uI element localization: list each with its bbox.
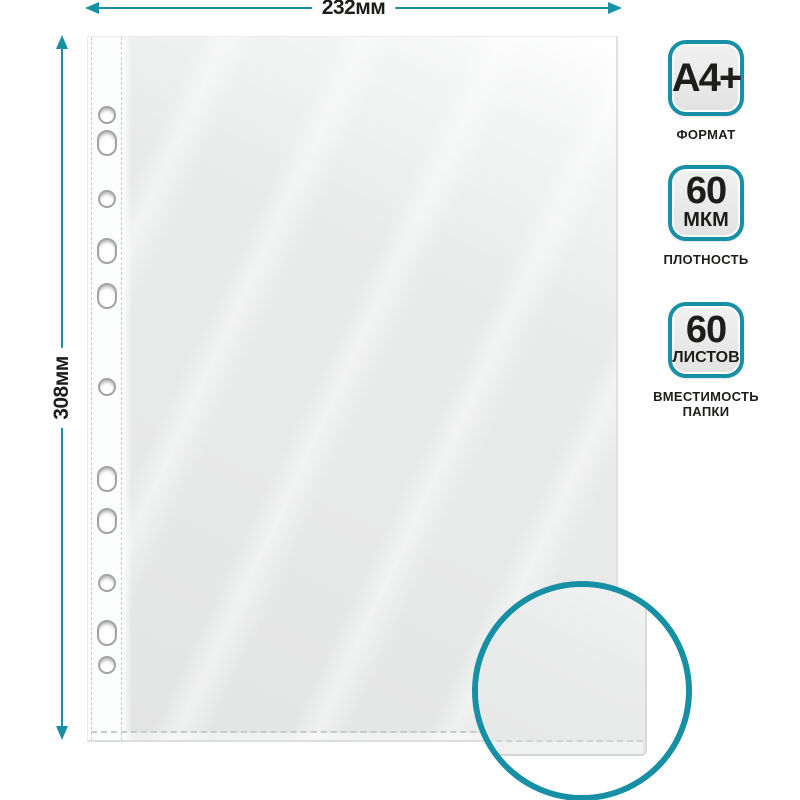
- badge-format: A4+ ФОРМАТ: [631, 40, 781, 142]
- arrow-right-icon: [608, 2, 622, 14]
- format-label: ФОРМАТ: [650, 127, 762, 142]
- zoom-circle: [472, 581, 692, 800]
- punch-hole: [98, 574, 116, 592]
- thickness-label: ПЛОТНОСТЬ: [650, 252, 762, 267]
- punch-hole: [97, 130, 117, 156]
- format-value: A4+: [672, 60, 741, 97]
- punch-hole: [98, 656, 116, 674]
- height-dimension: 308мм: [55, 35, 69, 740]
- zoom-bottom-weld-band: [472, 742, 643, 754]
- punch-hole: [98, 378, 116, 396]
- thickness-badge-box: 60 МКМ: [668, 165, 744, 241]
- weld-edge: [122, 37, 132, 740]
- stitch-line-left: [91, 37, 92, 740]
- arrow-up-icon: [56, 35, 68, 49]
- height-label: 308мм: [50, 348, 74, 428]
- zoom-sheet-corner: [472, 581, 647, 756]
- capacity-value: 60: [686, 313, 726, 348]
- arrow-down-icon: [56, 726, 68, 740]
- badge-capacity: 60 ЛИСТОВ ВМЕСТИМОСТЬ ПАПКИ: [631, 302, 781, 419]
- capacity-unit: ЛИСТОВ: [672, 349, 739, 367]
- format-badge-box: A4+: [668, 40, 744, 116]
- punch-hole: [97, 238, 117, 264]
- punch-hole: [98, 106, 116, 124]
- punch-hole: [97, 466, 117, 492]
- width-label: 232мм: [312, 0, 396, 20]
- badge-thickness: 60 МКМ ПЛОТНОСТЬ: [631, 165, 781, 267]
- arrow-left-icon: [85, 2, 99, 14]
- width-dimension: 232мм: [85, 0, 622, 22]
- thickness-value: 60: [686, 174, 726, 209]
- product-image: 232мм 308мм A4+ ФОРМАТ 60 МКМ ПЛОТНОСТЬ …: [0, 0, 800, 800]
- punch-hole: [97, 508, 117, 534]
- thickness-unit: МКМ: [683, 209, 729, 232]
- capacity-badge-box: 60 ЛИСТОВ: [668, 302, 744, 378]
- punch-hole: [97, 620, 117, 646]
- stitch-line-right: [121, 37, 122, 740]
- capacity-label: ВМЕСТИМОСТЬ ПАПКИ: [650, 389, 762, 419]
- punch-hole: [98, 190, 116, 208]
- punch-hole: [97, 283, 117, 309]
